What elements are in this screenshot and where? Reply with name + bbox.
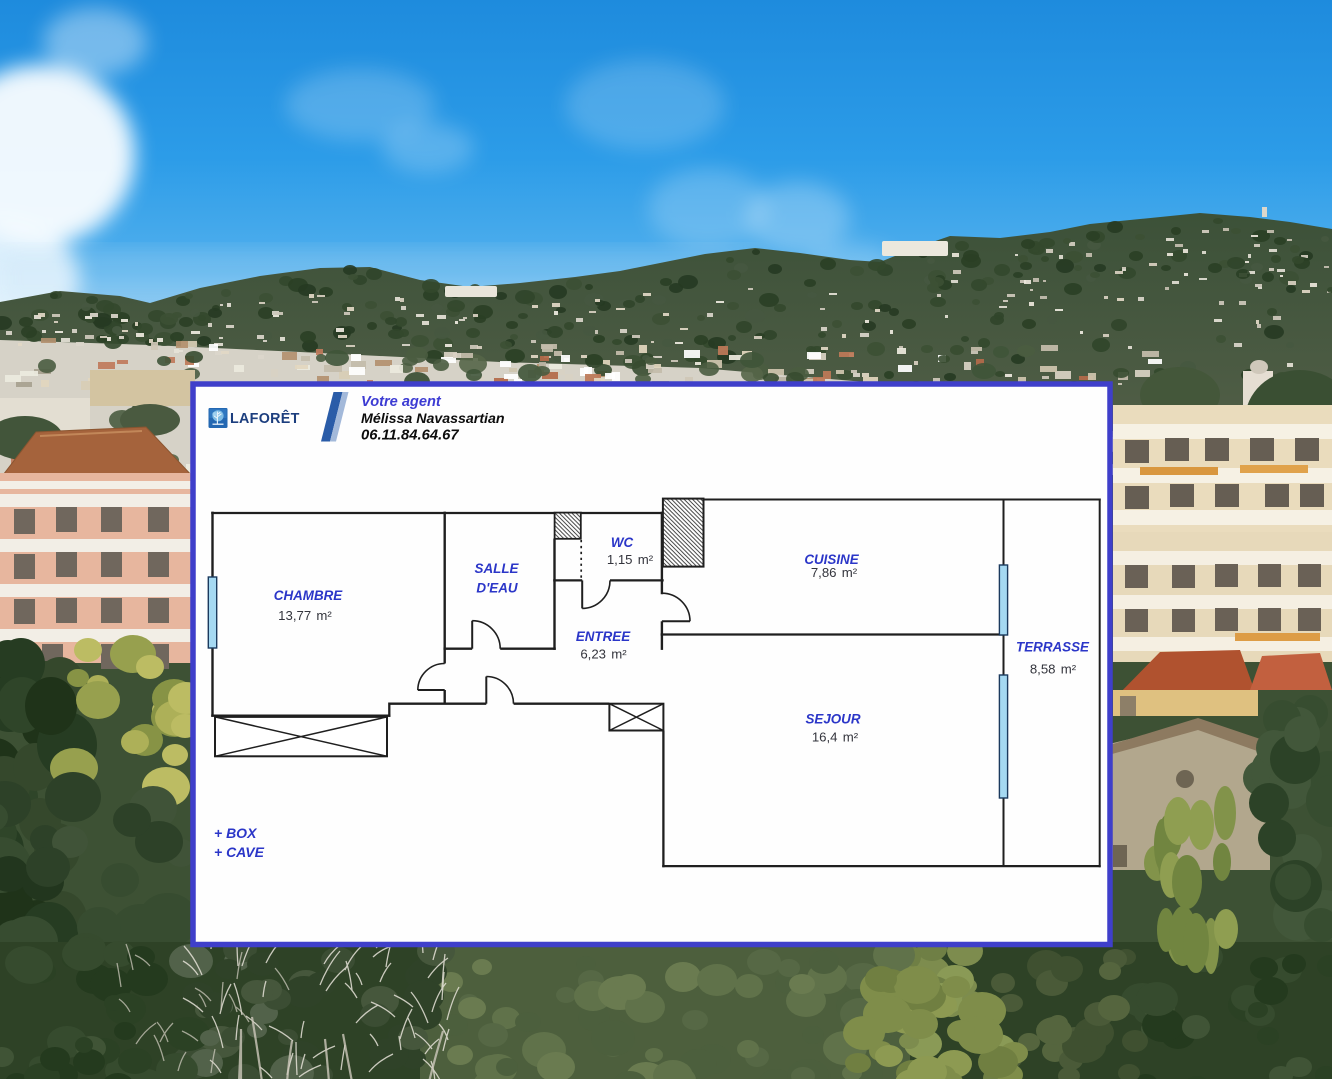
svg-text:TERRASSE: TERRASSE: [1016, 640, 1090, 655]
svg-text:+ CAVE: + CAVE: [214, 844, 265, 860]
svg-text:SEJOUR: SEJOUR: [805, 712, 860, 727]
svg-text:Mélissa Navassartian: Mélissa Navassartian: [361, 411, 505, 427]
svg-text:WC: WC: [611, 535, 634, 550]
svg-text:SALLE: SALLE: [475, 561, 520, 576]
svg-text:16,4 m²: 16,4 m²: [812, 730, 859, 745]
svg-text:ENTREE: ENTREE: [576, 629, 631, 644]
svg-text:CHAMBRE: CHAMBRE: [274, 588, 344, 603]
svg-text:1,15 m²: 1,15 m²: [607, 552, 654, 567]
svg-text:LAFORÊT: LAFORÊT: [230, 409, 300, 427]
svg-text:06.11.84.64.67: 06.11.84.64.67: [361, 428, 459, 444]
svg-text:13,77 m²: 13,77 m²: [278, 608, 332, 623]
svg-text:6,23 m²: 6,23 m²: [580, 647, 627, 662]
svg-text:7,86 m²: 7,86 m²: [811, 565, 858, 580]
svg-text:D'EAU: D'EAU: [476, 581, 517, 596]
svg-text:Votre agent: Votre agent: [361, 394, 442, 410]
svg-text:+ BOX: + BOX: [214, 825, 258, 841]
svg-text:8,58 m²: 8,58 m²: [1030, 662, 1077, 677]
